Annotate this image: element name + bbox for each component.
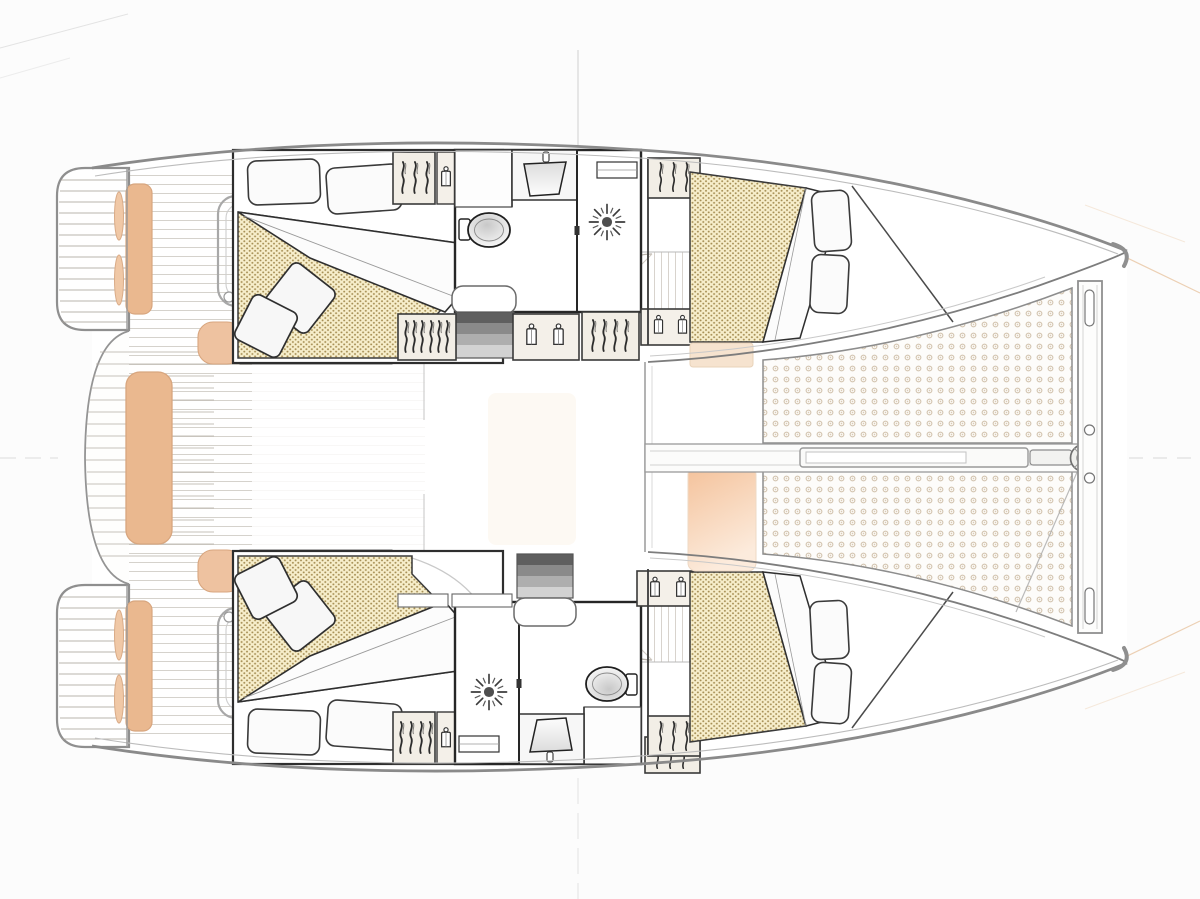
deck-band-port — [690, 343, 753, 367]
wardrobe-fwd-port — [582, 312, 639, 360]
jacket-locker-aft-port — [437, 152, 455, 204]
galley-block — [488, 393, 576, 545]
deck-plan-page: Catamaran interior deck plan - top view,… — [0, 0, 1200, 899]
cockpit-sole-fade — [252, 350, 428, 562]
fender-cushion — [115, 610, 124, 660]
wardrobe-aft-port — [393, 152, 435, 204]
forward-crossbeam — [1078, 281, 1102, 633]
companionway-port — [452, 286, 516, 358]
swim-platform-port — [57, 168, 152, 330]
wardrobe-aft-starboard — [393, 712, 435, 764]
swim-platform-starboard — [57, 585, 152, 747]
fender-cushion — [115, 192, 124, 240]
companionway-starboard — [514, 554, 576, 626]
transom-cushion — [126, 184, 152, 314]
transom-bench-cushion — [126, 372, 172, 544]
wardrobe-mid-port — [398, 314, 456, 360]
transom-cushion — [126, 601, 152, 731]
fender-cushion — [115, 255, 124, 305]
jacket-locker-mid-port — [513, 314, 579, 360]
jacket-locker-aft-starboard — [437, 712, 455, 764]
fender-cushion — [115, 675, 124, 723]
deck-plan-svg — [0, 0, 1200, 899]
cabinets-mid-starboard — [398, 594, 512, 607]
